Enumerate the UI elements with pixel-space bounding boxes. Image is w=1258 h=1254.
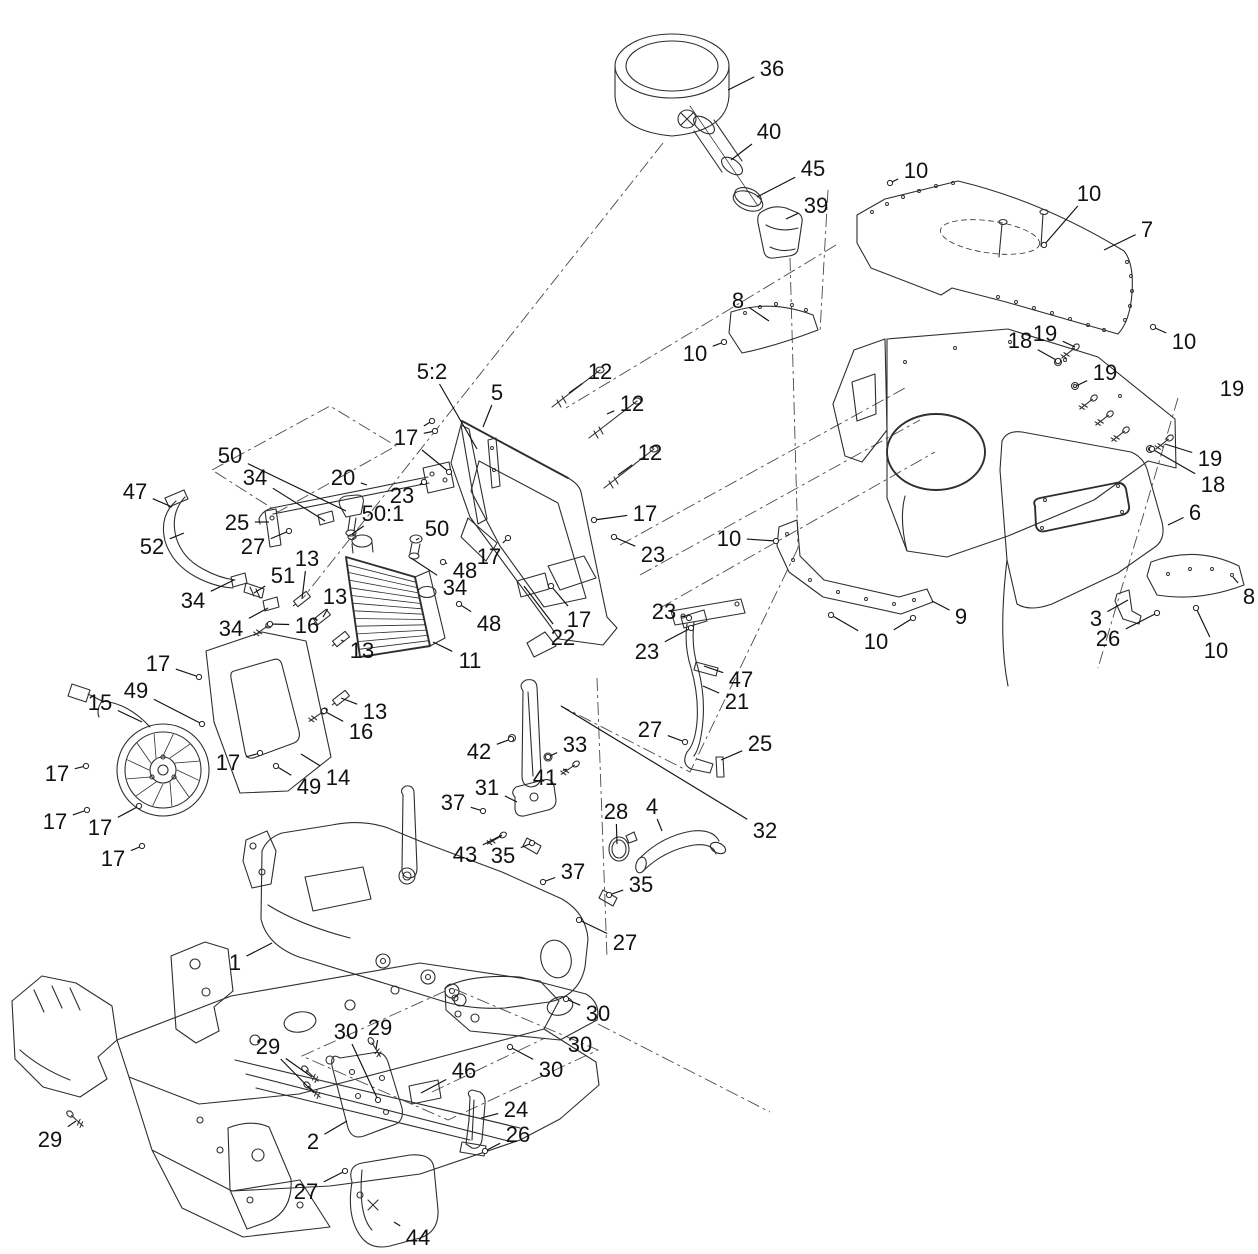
callout-29: 29 xyxy=(38,1127,62,1152)
callout-34: 34 xyxy=(219,616,243,641)
callout-51: 51 xyxy=(271,563,295,588)
fastener-icon xyxy=(688,625,693,630)
callout-14: 14 xyxy=(326,765,350,790)
leader-line xyxy=(1107,600,1128,612)
decal-plate-46 xyxy=(409,1080,441,1104)
leader-line xyxy=(1233,577,1238,583)
callout-46: 46 xyxy=(452,1058,476,1083)
callout-42: 42 xyxy=(467,739,491,764)
fastener-icon xyxy=(84,807,89,812)
leader-line xyxy=(118,806,139,817)
fastener-icon xyxy=(342,1168,347,1173)
callout-11: 11 xyxy=(459,648,482,673)
callout-20: 20 xyxy=(331,465,355,490)
fastener-icon xyxy=(773,538,778,543)
fastener-icon xyxy=(591,517,596,522)
callout-29: 29 xyxy=(256,1034,280,1059)
fastener-icon xyxy=(576,917,581,922)
leader-line xyxy=(170,533,184,539)
leader-line xyxy=(483,405,492,427)
leader-line xyxy=(176,669,199,677)
callout-31: 31 xyxy=(475,775,499,800)
callout-30: 30 xyxy=(539,1057,563,1082)
callout-17: 17 xyxy=(43,809,67,834)
fastener-icon xyxy=(480,808,485,813)
hose-clamp-28 xyxy=(609,832,637,861)
bracket-9 xyxy=(777,520,933,614)
fastener-icon xyxy=(421,479,426,484)
leader-line xyxy=(616,824,617,844)
callout-50: 50 xyxy=(218,443,242,468)
callout-34: 34 xyxy=(243,465,267,490)
callout-10: 10 xyxy=(1172,329,1196,354)
callout-19: 19 xyxy=(1220,376,1244,401)
callout-27: 27 xyxy=(294,1179,318,1204)
leader-line xyxy=(416,538,419,540)
callout-7: 7 xyxy=(1141,217,1153,242)
callout-17: 17 xyxy=(394,425,418,450)
leader-line xyxy=(433,642,452,651)
callout-27: 27 xyxy=(638,717,662,742)
callout-37: 37 xyxy=(441,790,465,815)
fastener-icon xyxy=(1149,446,1154,451)
callout-21: 21 xyxy=(725,689,749,714)
callout-34: 34 xyxy=(443,575,467,600)
callout-30: 30 xyxy=(586,1001,610,1026)
leader-line xyxy=(657,819,662,831)
callout-10: 10 xyxy=(1204,638,1228,663)
leader-line xyxy=(361,483,367,485)
callout-8: 8 xyxy=(732,288,744,313)
fastener-icon xyxy=(686,615,691,620)
leader-line xyxy=(211,580,234,591)
fastener-icon xyxy=(1193,605,1198,610)
leader-line xyxy=(703,686,719,693)
air-cleaner-cover-36 xyxy=(615,34,758,206)
leader-line xyxy=(757,177,795,197)
callout-52: 52 xyxy=(140,534,164,559)
fastener-icon xyxy=(321,708,326,713)
leader-line xyxy=(341,640,344,642)
fastener-icon xyxy=(1150,324,1155,329)
leader-line xyxy=(422,450,449,472)
fastener-icon xyxy=(721,339,726,344)
fastener-icon xyxy=(1055,358,1060,363)
exploded-parts-diagram: 3640453910107810181919101919186891032610… xyxy=(0,0,1258,1254)
strip-panel-8-right xyxy=(1147,554,1244,597)
callout-49: 49 xyxy=(297,774,321,799)
callout-19: 19 xyxy=(1093,360,1117,385)
fastener-icon xyxy=(273,763,278,768)
callout-24: 24 xyxy=(504,1097,528,1122)
callout-44: 44 xyxy=(406,1225,430,1250)
cap-45 xyxy=(730,184,765,215)
fastener-icon xyxy=(440,559,445,564)
fastener-icon xyxy=(1041,242,1046,247)
callout-10: 10 xyxy=(717,526,741,551)
fastener-icon xyxy=(267,621,272,626)
callout-12: 12 xyxy=(588,359,612,384)
fastener-icon xyxy=(529,840,534,845)
fastener-icon xyxy=(508,736,513,741)
callout-10: 10 xyxy=(904,158,928,183)
callout-27: 27 xyxy=(613,930,637,955)
fastener-icon xyxy=(540,879,545,884)
callout-1: 1 xyxy=(229,950,241,975)
callout-17: 17 xyxy=(88,815,112,840)
callout-23: 23 xyxy=(641,542,665,567)
callout-15: 15 xyxy=(88,690,112,715)
fan-15 xyxy=(117,724,209,816)
leader-line xyxy=(324,711,343,721)
callout-27: 27 xyxy=(241,534,265,559)
callout-40: 40 xyxy=(757,119,781,144)
leader-line xyxy=(324,1121,347,1134)
callout-17: 17 xyxy=(633,501,657,526)
callout-16: 16 xyxy=(295,613,319,638)
parts-artwork xyxy=(12,34,1244,1247)
callout-50: 50 xyxy=(425,516,449,541)
callout-26: 26 xyxy=(506,1122,530,1147)
fastener-icon xyxy=(1154,610,1159,615)
leader-line xyxy=(281,1059,314,1093)
inlet-tube-40 xyxy=(690,113,745,179)
callout-30: 30 xyxy=(568,1032,592,1057)
leader-line xyxy=(324,1171,345,1182)
callout-17: 17 xyxy=(101,846,125,871)
callout-17: 17 xyxy=(567,607,591,632)
callout-30: 30 xyxy=(334,1019,358,1044)
fastener-icon xyxy=(429,418,434,423)
callout-41: 41 xyxy=(533,765,557,790)
callout-layer: 3640453910107810181919101919186891032610… xyxy=(38,56,1255,1250)
leader-line xyxy=(154,699,202,724)
lower-hose-4 xyxy=(634,831,727,874)
fastener-icon xyxy=(606,892,611,897)
callout-19: 19 xyxy=(1033,321,1057,346)
callout-2: 2 xyxy=(307,1129,319,1154)
callout-45: 45 xyxy=(801,156,825,181)
leader-line xyxy=(594,515,627,520)
fastener-icon xyxy=(199,721,204,726)
callout-28: 28 xyxy=(604,799,628,824)
leader-line xyxy=(614,537,635,546)
leader-line xyxy=(1168,518,1184,526)
callout-10: 10 xyxy=(864,629,888,654)
panel-screw-dots xyxy=(491,182,1234,606)
callout-13: 13 xyxy=(295,546,319,571)
leader-line xyxy=(569,384,582,393)
fastener-icon xyxy=(482,1148,487,1153)
leader-line xyxy=(1196,608,1210,637)
callout-49: 49 xyxy=(124,678,148,703)
callout-17: 17 xyxy=(216,750,240,775)
fastener-icon xyxy=(505,535,510,540)
callout-29: 29 xyxy=(368,1015,392,1040)
leader-line xyxy=(894,618,913,630)
callout-17: 17 xyxy=(45,761,69,786)
callout-25: 25 xyxy=(748,731,772,756)
leader-line xyxy=(721,751,742,760)
leader-line xyxy=(246,943,272,956)
fastener-icon xyxy=(887,180,892,185)
callout-9: 9 xyxy=(955,604,967,629)
callout-25: 25 xyxy=(225,510,249,535)
fastener-icon xyxy=(548,583,553,588)
callout-35: 35 xyxy=(491,843,515,868)
leader-line xyxy=(153,499,172,507)
callout-36: 36 xyxy=(760,56,784,81)
fastener-icon xyxy=(257,750,262,755)
callout-13: 13 xyxy=(350,638,374,663)
callout-4: 4 xyxy=(646,794,658,819)
leader-line xyxy=(831,615,858,631)
callout-10: 10 xyxy=(1077,181,1101,206)
fastener-icon xyxy=(432,428,437,433)
callout-35: 35 xyxy=(629,872,653,897)
fastener-icon xyxy=(446,469,451,474)
leader-line xyxy=(249,608,268,618)
callout-12: 12 xyxy=(620,391,644,416)
leader-line xyxy=(932,601,950,610)
fastener-icon xyxy=(136,803,141,808)
callout-50:1: 50:1 xyxy=(362,501,405,526)
callout-33: 33 xyxy=(563,732,587,757)
callout-8: 8 xyxy=(1243,584,1255,609)
fastener-icon xyxy=(83,763,88,768)
callout-18: 18 xyxy=(1008,328,1032,353)
callout-18: 18 xyxy=(1201,472,1225,497)
fastener-icon xyxy=(375,1097,380,1102)
leader-line xyxy=(1165,444,1192,453)
fastener-icon xyxy=(545,754,550,759)
callout-12: 12 xyxy=(638,440,662,465)
leader-line xyxy=(728,77,754,90)
overflow-rod-20 xyxy=(259,462,454,559)
callout-17: 17 xyxy=(146,651,170,676)
callout-10: 10 xyxy=(683,341,707,366)
fastener-icon xyxy=(507,1044,512,1049)
fastener-icon xyxy=(139,843,144,848)
fastener-icon xyxy=(456,601,461,606)
leader-line xyxy=(301,754,320,766)
fastener-icon xyxy=(611,534,616,539)
callout-39: 39 xyxy=(804,193,828,218)
callout-48: 48 xyxy=(477,611,501,636)
callout-23: 23 xyxy=(652,599,676,624)
leader-line xyxy=(786,213,798,219)
callout-16: 16 xyxy=(349,719,373,744)
callout-6: 6 xyxy=(1189,500,1201,525)
callout-26: 26 xyxy=(1096,626,1120,651)
callout-32: 32 xyxy=(753,818,777,843)
clip-3 xyxy=(1115,590,1141,624)
leader-line xyxy=(440,384,478,449)
callout-5:2: 5:2 xyxy=(417,359,448,384)
leader-line xyxy=(394,1222,400,1226)
fastener-icon xyxy=(286,528,291,533)
callout-13: 13 xyxy=(323,584,347,609)
fastener-icon xyxy=(196,674,201,679)
leader-line xyxy=(68,1121,76,1127)
leader-line xyxy=(273,488,325,521)
fastener-icon xyxy=(682,739,687,744)
leader-line xyxy=(579,920,607,934)
callout-23: 23 xyxy=(635,639,659,664)
leader-line xyxy=(1038,350,1058,361)
heat-shield-panel-6 xyxy=(1000,432,1163,686)
leader-line xyxy=(1152,449,1195,474)
callout-17: 17 xyxy=(477,544,501,569)
fastener-icon xyxy=(910,615,915,620)
callout-43: 43 xyxy=(453,842,477,867)
strip-panel-8-top xyxy=(729,306,818,353)
fastener-icon xyxy=(563,996,568,1001)
fastener-icon xyxy=(828,612,833,617)
leader-line xyxy=(607,411,614,414)
latch-24 xyxy=(460,1090,486,1156)
leader-line xyxy=(749,308,769,321)
leader-line xyxy=(665,628,691,642)
leader-line xyxy=(731,144,752,160)
leader-line xyxy=(618,465,632,475)
callout-19: 19 xyxy=(1198,446,1222,471)
leader-line xyxy=(302,571,305,599)
leader-line xyxy=(747,539,776,541)
callout-37: 37 xyxy=(561,859,585,884)
callout-34: 34 xyxy=(181,588,205,613)
callout-5: 5 xyxy=(491,380,503,405)
leader-line xyxy=(376,1040,378,1049)
callout-47: 47 xyxy=(123,479,147,504)
